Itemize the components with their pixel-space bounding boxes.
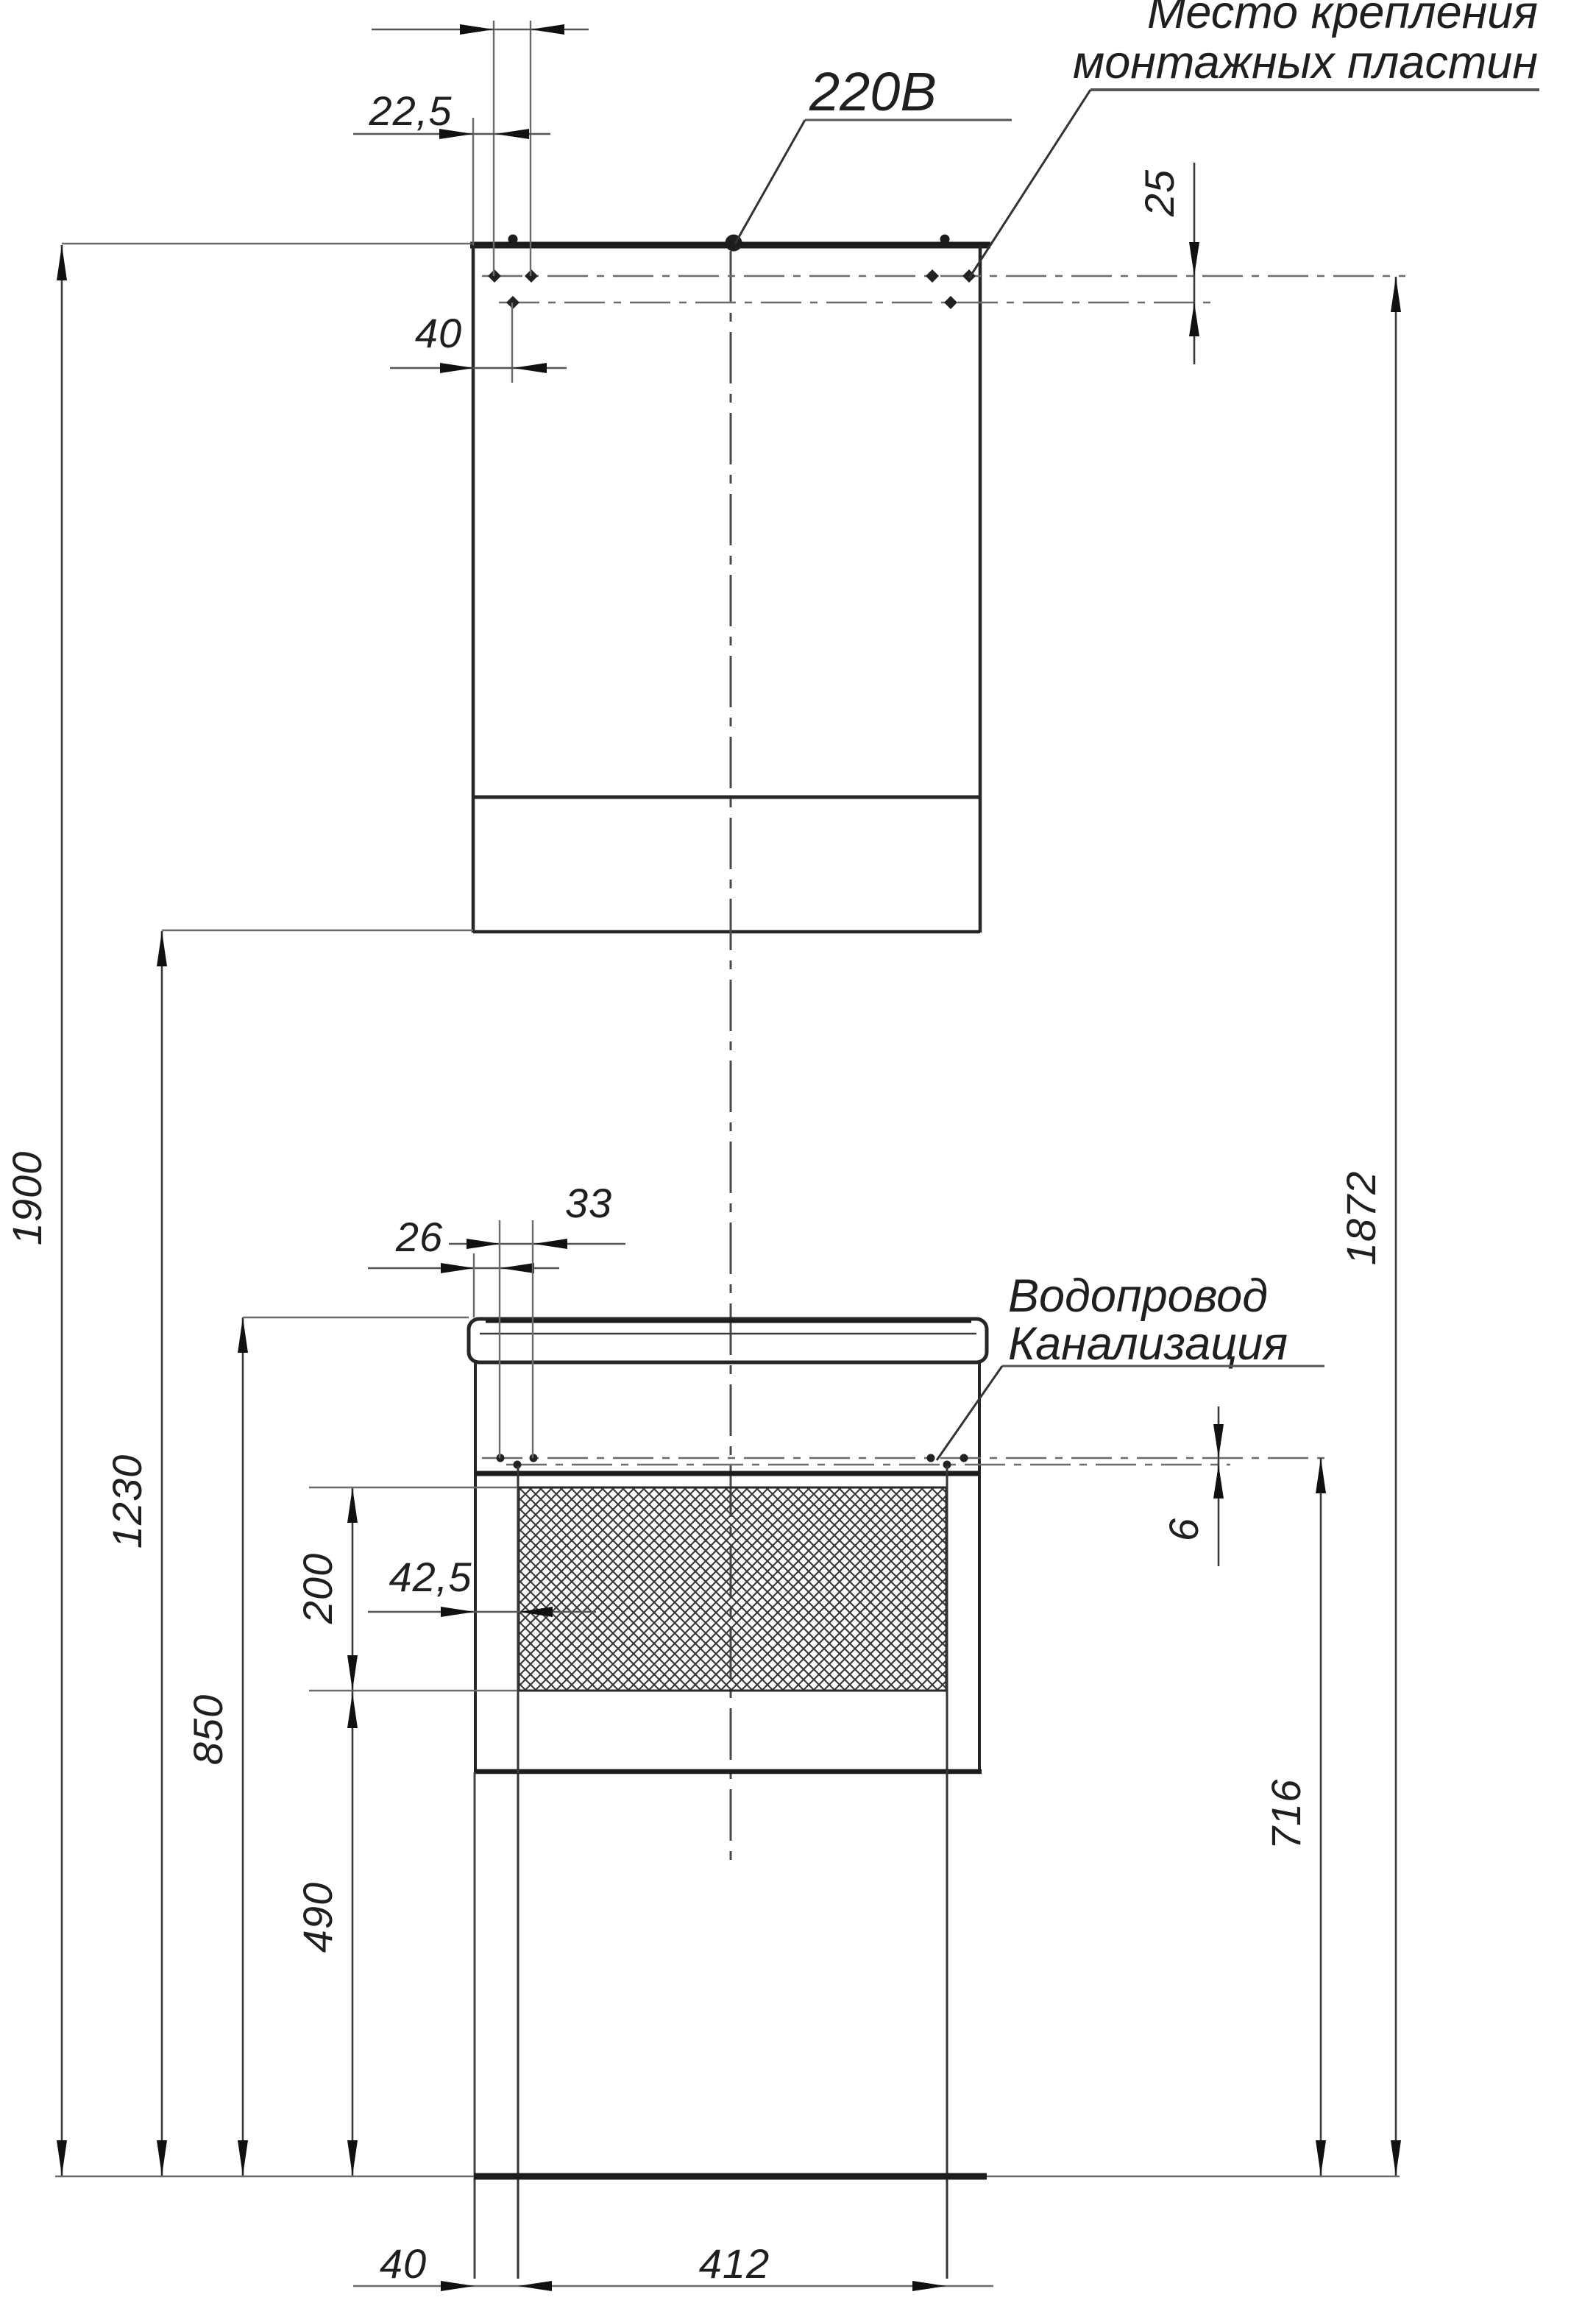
technical-drawing-canvas: 1900 1230 850 200 490 1872 (0, 0, 1596, 2300)
dimension-1900: 1900 (4, 244, 472, 2176)
dimension-label-40-bottom: 40 (380, 2240, 427, 2287)
dimension-label-200: 200 (294, 1553, 341, 1624)
dimension-25: 25 (1136, 163, 1199, 364)
dimension-490: 490 (294, 1691, 358, 2176)
vanity-cabinet (469, 1319, 1333, 2279)
dimension-1872: 1872 (1338, 277, 1401, 2176)
arrow-down-icon (1189, 242, 1199, 276)
dimension-1230: 1230 (104, 930, 473, 2176)
arrow-down-icon (57, 2140, 67, 2176)
dimension-6: 6 (1160, 1406, 1224, 1566)
arrow-right-icon (440, 363, 474, 373)
dimension-label-716: 716 (1263, 1779, 1309, 1850)
arrow-up-icon (1316, 1458, 1326, 1493)
annotation-plumbing: Водопровод Канализация (937, 1270, 1324, 1460)
arrow-right-icon (467, 1239, 500, 1249)
arrow-down-icon (347, 2140, 358, 2176)
dimension-label-22-5: 22,5 (369, 88, 453, 134)
dimension-label-25: 25 (1136, 169, 1182, 217)
dimension-22-5: 22,5 (353, 88, 550, 139)
lamp-screw-dot-right (940, 235, 950, 244)
arrow-right-icon (460, 24, 494, 35)
arrow-down-icon (1213, 1424, 1224, 1458)
arrow-left-icon (518, 2281, 552, 2291)
annotation-power: 220В (735, 61, 1012, 244)
arrow-right-icon (441, 1263, 475, 1273)
dimension-top-cutoff (372, 24, 589, 35)
lamp-screw-dot-left (508, 235, 518, 244)
installation-diagram: 1900 1230 850 200 490 1872 (0, 0, 1596, 2300)
dimension-850: 850 (185, 1317, 469, 2176)
dimension-label-490: 490 (294, 1882, 341, 1953)
dimension-label-6: 6 (1160, 1518, 1207, 1541)
arrow-up-icon (1391, 277, 1401, 312)
mounting-hole-dot (927, 1454, 935, 1462)
dimension-label-26: 26 (395, 1214, 443, 1260)
arrow-up-icon (57, 245, 67, 280)
mounting-plate-hatch-panel (519, 1487, 946, 1691)
dimension-716: 716 (1263, 1458, 1326, 2176)
arrow-down-icon (1391, 2140, 1401, 2176)
arrow-left-icon (531, 24, 564, 35)
mounting-hole-dot (960, 1454, 968, 1462)
dimension-33: 33 (449, 1180, 625, 1249)
arrow-up-icon (157, 931, 167, 966)
arrow-left-icon (533, 1239, 567, 1249)
arrow-left-icon (500, 1263, 534, 1273)
arrow-up-icon (1189, 302, 1199, 336)
plumbing-label-line2: Канализация (1008, 1318, 1288, 1370)
dimension-40-top: 40 (390, 310, 567, 373)
arrow-up-icon (347, 1693, 358, 1728)
leader-line (735, 120, 805, 244)
arrow-up-icon (347, 1487, 358, 1523)
leader-line (969, 90, 1090, 278)
dimension-label-412: 412 (699, 2240, 770, 2287)
mounting-plates-label-line1: Место крепления (1147, 0, 1538, 38)
dimension-label-1900: 1900 (4, 1151, 50, 1246)
arrow-left-icon (513, 363, 547, 373)
arrow-down-icon (1316, 2140, 1326, 2176)
countertop-slab (469, 1319, 987, 1362)
annotation-mounting-plates: Место крепления монтажных пластин (969, 0, 1539, 278)
dimension-label-33: 33 (565, 1180, 612, 1226)
arrow-right-icon (441, 2281, 475, 2291)
dimension-label-1230: 1230 (104, 1454, 150, 1549)
dimension-26: 26 (368, 1214, 559, 1458)
mounting-plates-label-line2: монтажных пластин (1073, 37, 1538, 88)
arrow-up-icon (238, 1317, 248, 1353)
mounting-hole-marker (926, 269, 939, 283)
dimension-label-850: 850 (185, 1694, 231, 1765)
arrow-down-icon (238, 2140, 248, 2176)
arrow-right-icon (441, 1607, 475, 1617)
arrow-up-icon (1213, 1465, 1224, 1498)
leader-line (937, 1366, 1002, 1460)
arrow-left-icon (495, 129, 529, 139)
arrow-right-icon (912, 2281, 946, 2291)
dimension-bottom-row: 40 412 (353, 2240, 993, 2291)
arrow-down-icon (157, 2140, 167, 2176)
dimension-label-40: 40 (415, 310, 462, 356)
arrow-down-icon (347, 1655, 358, 1691)
dimension-label-1872: 1872 (1338, 1171, 1384, 1266)
dimension-label-42-5: 42,5 (389, 1554, 472, 1600)
plumbing-label-line1: Водопровод (1008, 1270, 1268, 1322)
mounting-hole-marker (944, 296, 957, 309)
power-label: 220В (809, 61, 937, 122)
